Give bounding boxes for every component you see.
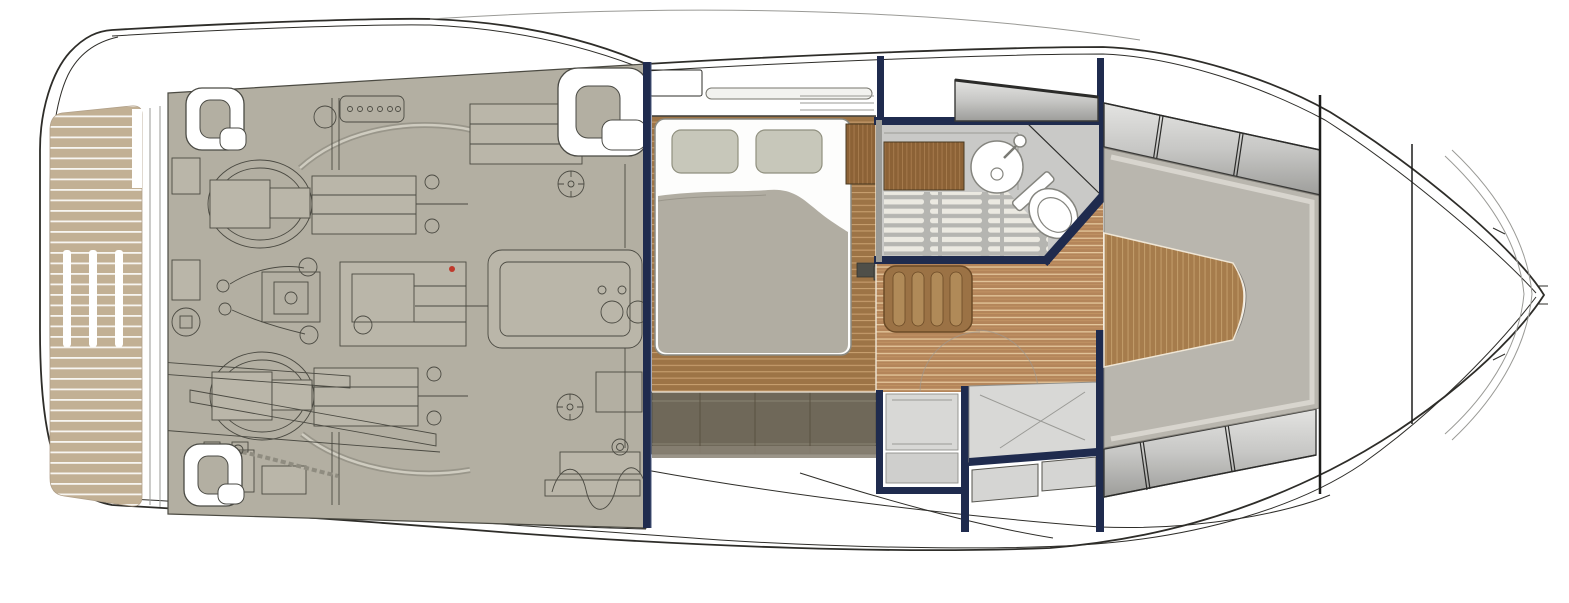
platform-hatch-slot [63,250,71,347]
galley-drawer [972,464,1038,502]
pillow [672,130,738,173]
pillow [756,130,822,173]
duvet [658,190,848,353]
wardrobe [846,124,876,184]
status-dot [449,266,455,272]
platform-notch [132,109,142,188]
platform-hatch-slot [115,250,123,347]
fridge-unit [876,390,964,494]
hull-side-lockers [652,392,876,458]
engine-room [160,64,672,528]
bow-cabin [1104,103,1320,497]
cleat-icon [558,68,648,156]
floorplan-svg [0,0,1569,603]
platform-hatch-slot [89,250,97,347]
cleat-icon [184,444,244,506]
cleat-icon [186,88,246,150]
galley-drawer [1042,457,1096,491]
double-berth [655,119,851,355]
aft-cabin [652,116,892,458]
yacht-floorplan-canvas [0,0,1569,603]
vanity-counter [884,142,964,190]
engine-room-bulkhead [643,62,651,528]
folding-table [884,266,972,332]
